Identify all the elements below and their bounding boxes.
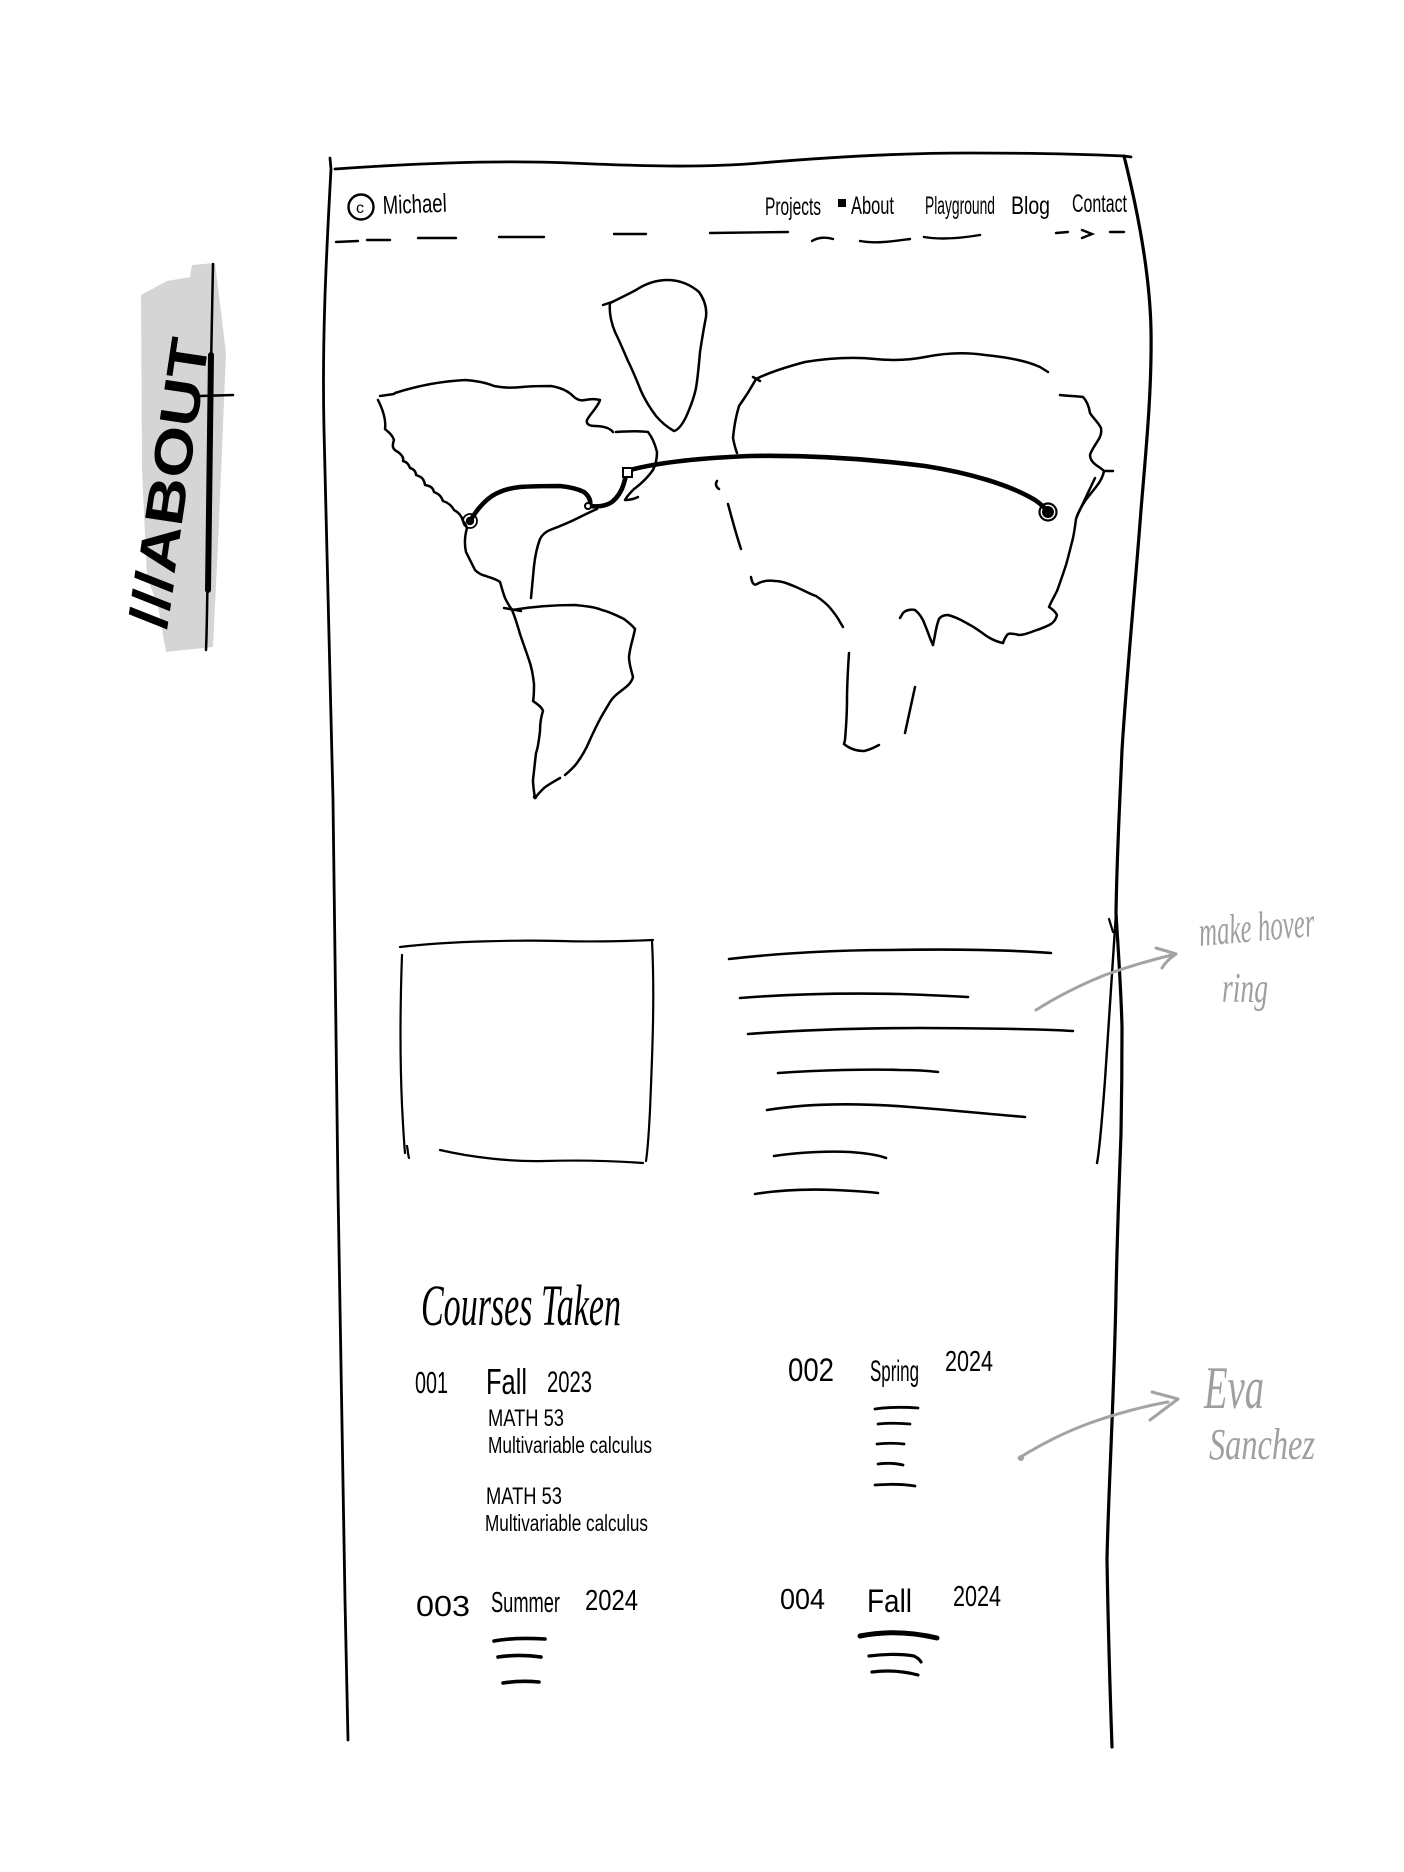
svg-text:ring: ring <box>1222 966 1268 1012</box>
svg-text:Summer: Summer <box>491 1587 560 1619</box>
svg-text:004: 004 <box>780 1584 825 1616</box>
svg-text:Sanchez: Sanchez <box>1209 1420 1315 1469</box>
svg-text:MATH 53: MATH 53 <box>488 1405 564 1432</box>
svg-text:002: 002 <box>788 1352 834 1388</box>
svg-text:2024: 2024 <box>953 1581 1001 1613</box>
svg-text:Spring: Spring <box>870 1355 919 1388</box>
svg-text:Projects: Projects <box>765 193 821 221</box>
svg-text:Michael: Michael <box>382 188 447 220</box>
svg-text:2024: 2024 <box>585 1585 638 1617</box>
svg-text:2023: 2023 <box>547 1366 592 1399</box>
svg-text:c: c <box>356 200 364 217</box>
svg-text:Fall: Fall <box>867 1583 912 1619</box>
svg-text:Fall: Fall <box>486 1361 527 1402</box>
svg-text:001: 001 <box>415 1365 448 1400</box>
svg-text:Playground: Playground <box>925 192 995 220</box>
svg-text:Multivariable calculus: Multivariable calculus <box>488 1432 652 1458</box>
svg-text:003: 003 <box>416 1591 470 1623</box>
svg-text:Multivariable calculus: Multivariable calculus <box>485 1510 648 1536</box>
svg-text:About: About <box>851 192 894 220</box>
svg-text:Eva: Eva <box>1203 1355 1264 1421</box>
svg-text:Blog: Blog <box>1011 192 1050 220</box>
svg-text:Courses Taken: Courses Taken <box>421 1273 621 1338</box>
svg-text:Contact: Contact <box>1072 190 1127 218</box>
svg-text:MATH 53: MATH 53 <box>486 1483 562 1510</box>
svg-text:2024: 2024 <box>945 1346 993 1378</box>
